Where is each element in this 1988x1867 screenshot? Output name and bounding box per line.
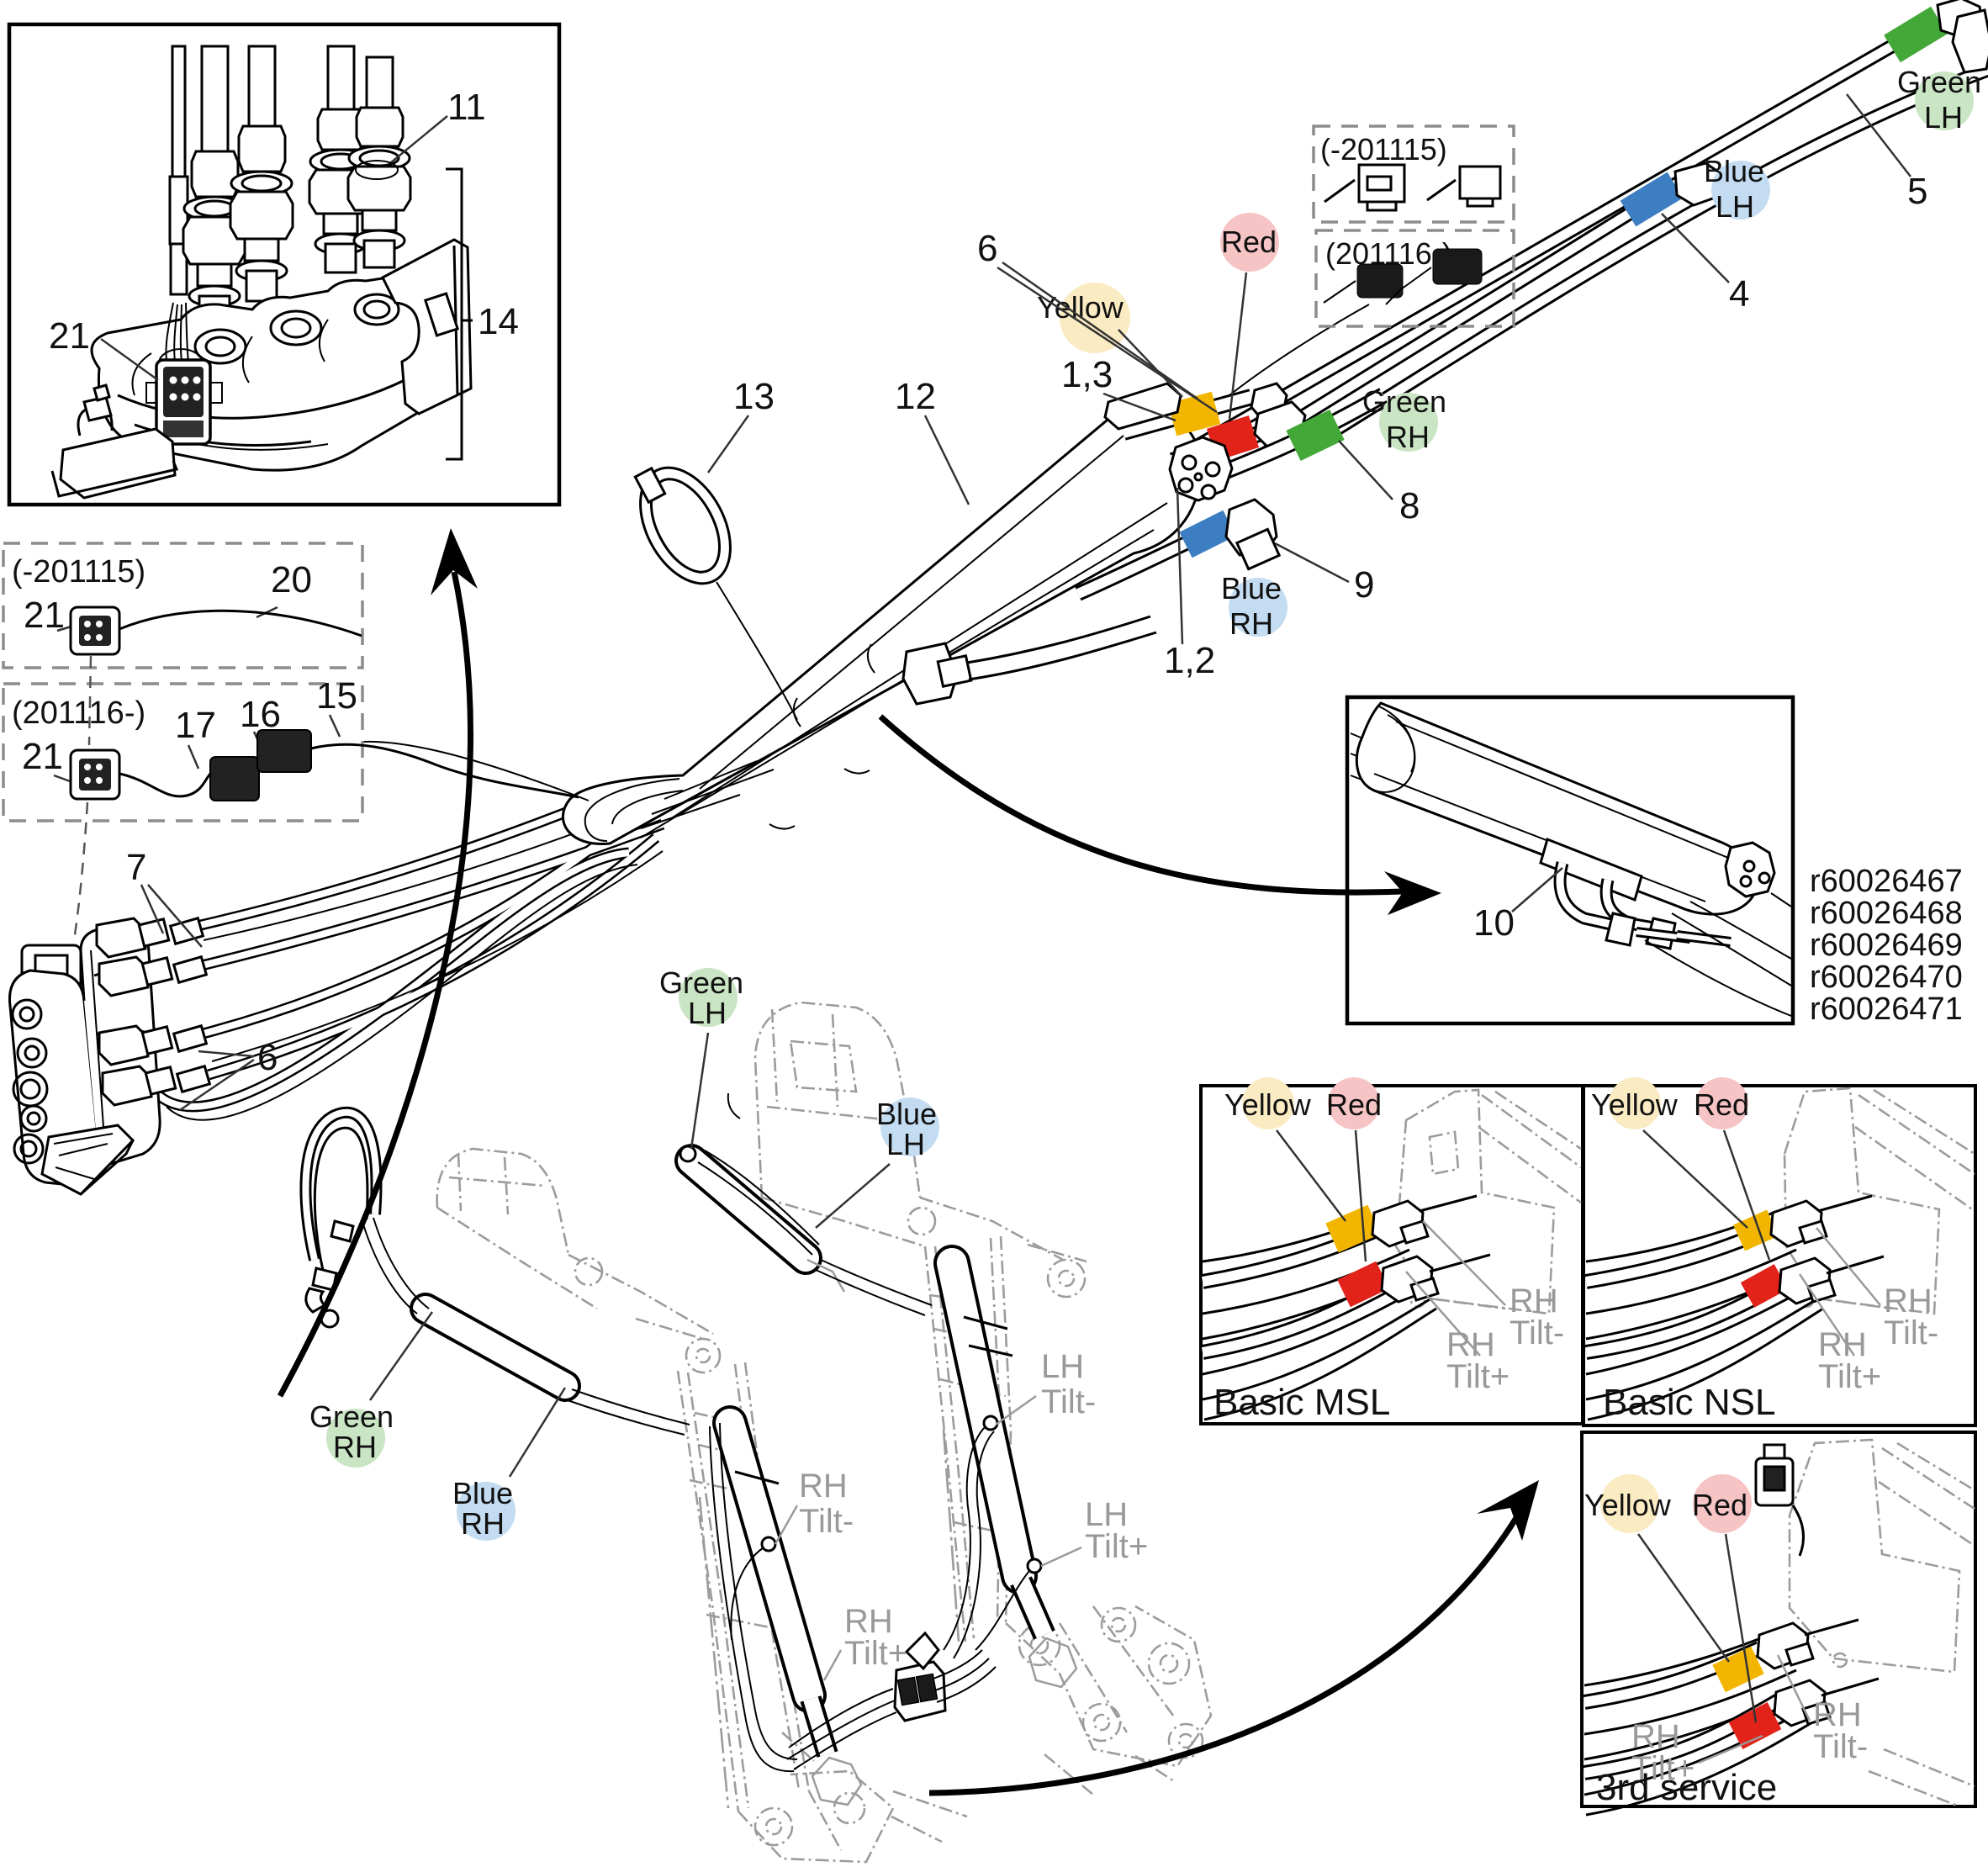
svg-text:7: 7 <box>126 847 146 888</box>
svg-text:Tilt-: Tilt- <box>799 1503 854 1540</box>
svg-text:LH: LH <box>886 1127 925 1161</box>
svg-text:6: 6 <box>977 228 997 269</box>
svg-text:Tilt+: Tilt+ <box>844 1635 907 1672</box>
svg-text:LH: LH <box>1041 1348 1084 1385</box>
svg-text:RH: RH <box>1229 606 1273 641</box>
svg-text:8: 8 <box>1399 485 1420 526</box>
svg-text:1,3: 1,3 <box>1061 354 1113 395</box>
svg-text:Red: Red <box>1326 1087 1382 1122</box>
svg-text:1,2: 1,2 <box>1164 640 1215 681</box>
svg-text:Blue: Blue <box>1221 571 1282 606</box>
svg-text:14: 14 <box>478 301 519 342</box>
svg-text:Green: Green <box>659 965 743 1000</box>
svg-text:16: 16 <box>240 694 281 735</box>
svg-text:(201116-): (201116-) <box>12 695 145 731</box>
svg-text:Blue: Blue <box>876 1097 937 1131</box>
svg-text:Tilt+: Tilt+ <box>1085 1528 1148 1565</box>
svg-text:RH: RH <box>333 1430 377 1464</box>
svg-text:9: 9 <box>1354 564 1374 606</box>
svg-text:Red: Red <box>1694 1087 1749 1122</box>
svg-text:LH: LH <box>688 996 727 1030</box>
svg-text:Green: Green <box>309 1399 394 1434</box>
svg-text:11: 11 <box>447 87 486 128</box>
svg-text:Green: Green <box>1362 384 1446 419</box>
svg-text:Yellow: Yellow <box>1584 1488 1672 1522</box>
svg-text:r60026469: r60026469 <box>1810 928 1963 963</box>
svg-text:Yellow: Yellow <box>1591 1087 1679 1122</box>
svg-text:10: 10 <box>1473 902 1515 944</box>
svg-text:21: 21 <box>22 736 63 777</box>
svg-text:LH: LH <box>1924 100 1963 135</box>
svg-text:Blue: Blue <box>452 1476 513 1510</box>
svg-text:20: 20 <box>271 559 312 600</box>
svg-text:5: 5 <box>1907 171 1927 212</box>
svg-text:(-201115): (-201115) <box>1320 132 1447 167</box>
svg-text:r60026467: r60026467 <box>1810 864 1963 899</box>
svg-text:21: 21 <box>49 315 90 357</box>
svg-text:6: 6 <box>257 1037 278 1078</box>
svg-text:r60026468: r60026468 <box>1810 896 1963 931</box>
svg-text:Tilt-: Tilt- <box>1510 1314 1564 1351</box>
svg-text:Basic MSL: Basic MSL <box>1213 1382 1390 1423</box>
svg-text:LH: LH <box>1716 189 1754 224</box>
svg-text:RH: RH <box>1386 420 1430 454</box>
svg-text:Tilt+: Tilt+ <box>1446 1358 1510 1395</box>
svg-text:Red: Red <box>1221 225 1277 259</box>
svg-text:(-201115): (-201115) <box>12 554 145 590</box>
svg-text:Basic NSL: Basic NSL <box>1603 1382 1775 1423</box>
svg-text:15: 15 <box>316 675 357 717</box>
svg-text:Blue: Blue <box>1704 154 1764 188</box>
svg-text:RH: RH <box>461 1506 505 1541</box>
svg-text:r60026470: r60026470 <box>1810 960 1963 995</box>
svg-text:Tilt-: Tilt- <box>1813 1728 1868 1765</box>
svg-text:13: 13 <box>733 376 775 417</box>
svg-text:Tilt+: Tilt+ <box>1818 1358 1881 1395</box>
svg-text:RH: RH <box>799 1468 848 1505</box>
svg-text:Yellow: Yellow <box>1224 1087 1312 1122</box>
svg-text:17: 17 <box>175 705 216 746</box>
svg-text:r60026471: r60026471 <box>1810 992 1963 1027</box>
svg-text:Red: Red <box>1692 1488 1747 1522</box>
svg-text:4: 4 <box>1729 273 1749 315</box>
svg-text:12: 12 <box>895 376 936 417</box>
svg-text:Tilt-: Tilt- <box>1041 1383 1096 1420</box>
svg-text:Tilt-: Tilt- <box>1884 1314 1938 1351</box>
svg-text:Green: Green <box>1897 65 1981 99</box>
svg-text:Tilt+: Tilt+ <box>1631 1750 1695 1787</box>
